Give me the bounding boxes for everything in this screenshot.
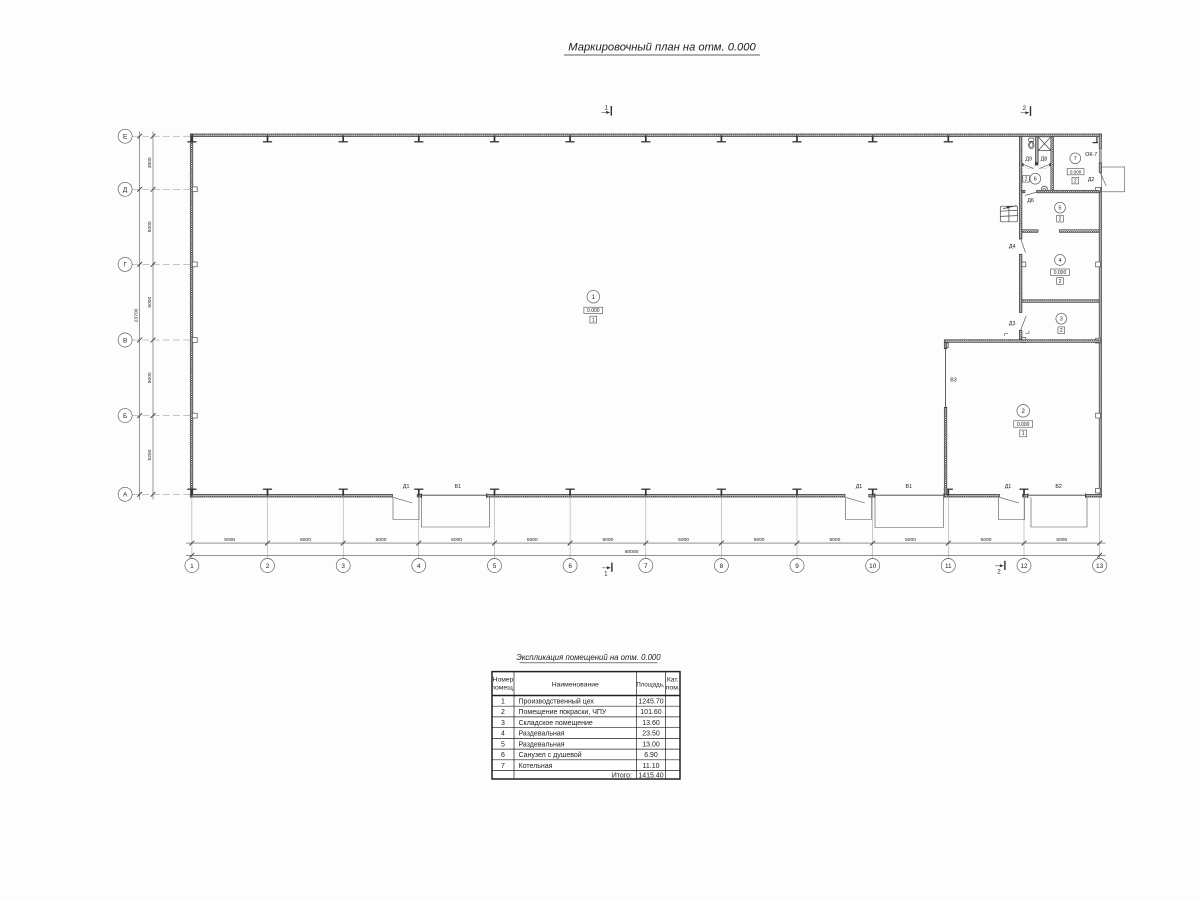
svg-text:Д: Д — [123, 187, 128, 194]
svg-text:Кат.: Кат. — [667, 677, 679, 684]
svg-text:1: 1 — [605, 105, 609, 112]
svg-text:5000: 5000 — [829, 537, 840, 543]
svg-text:8: 8 — [720, 563, 724, 570]
svg-text:5000: 5000 — [451, 537, 462, 543]
svg-text:6: 6 — [568, 563, 572, 570]
svg-text:Раздевальная: Раздевальная — [519, 731, 565, 738]
svg-text:101.60: 101.60 — [640, 709, 662, 716]
svg-text:0.000: 0.000 — [1070, 169, 1082, 174]
svg-text:5000: 5000 — [527, 537, 538, 543]
svg-text:5000: 5000 — [147, 296, 153, 307]
svg-text:Д6: Д6 — [1027, 198, 1034, 204]
svg-text:1: 1 — [604, 571, 608, 578]
svg-text:5000: 5000 — [147, 221, 153, 232]
svg-text:Складское помещение: Складское помещение — [519, 720, 593, 727]
svg-text:10: 10 — [869, 563, 877, 570]
svg-text:Д4: Д4 — [1009, 244, 1016, 250]
svg-text:2: 2 — [266, 563, 270, 570]
svg-text:5000: 5000 — [1056, 537, 1067, 543]
svg-text:1245.70: 1245.70 — [638, 699, 663, 706]
svg-text:Итого:: Итого: — [612, 772, 632, 779]
svg-text:Б: Б — [123, 413, 127, 420]
svg-text:Г: Г — [123, 262, 127, 269]
svg-text:1: 1 — [501, 699, 505, 706]
svg-text:Д1: Д1 — [856, 484, 863, 490]
svg-text:5000: 5000 — [602, 537, 613, 543]
svg-text:помещ.: помещ. — [491, 685, 515, 692]
svg-text:Номер: Номер — [493, 677, 514, 684]
svg-text:0.000: 0.000 — [587, 308, 600, 314]
svg-text:3: 3 — [501, 720, 505, 727]
svg-text:5000: 5000 — [224, 537, 235, 543]
svg-text:2: 2 — [1023, 105, 1027, 112]
svg-text:Котельная: Котельная — [519, 763, 553, 770]
svg-text:5: 5 — [501, 741, 505, 748]
svg-text:Д1: Д1 — [1005, 484, 1012, 490]
svg-text:Д8: Д8 — [1041, 157, 1048, 163]
svg-text:2: 2 — [501, 709, 505, 716]
svg-text:60000: 60000 — [625, 549, 639, 555]
svg-text:5: 5 — [1059, 206, 1062, 212]
svg-text:5000: 5000 — [300, 537, 311, 543]
svg-text:Площадь,: Площадь, — [636, 682, 665, 689]
svg-text:4: 4 — [1059, 258, 1062, 264]
svg-text:11.10: 11.10 — [643, 763, 660, 770]
svg-text:Д3: Д3 — [1009, 321, 1016, 327]
svg-text:3: 3 — [1060, 317, 1063, 323]
svg-text:Наименование: Наименование — [552, 682, 599, 689]
svg-text:7: 7 — [644, 563, 648, 570]
svg-text:Е: Е — [123, 134, 127, 141]
svg-text:5: 5 — [493, 563, 497, 570]
svg-text:0.000: 0.000 — [1017, 422, 1030, 428]
svg-text:ОК-7: ОК-7 — [1085, 152, 1097, 158]
svg-text:2: 2 — [1059, 279, 1062, 285]
svg-text:5000: 5000 — [376, 537, 387, 543]
svg-text:пом.: пом. — [666, 685, 680, 692]
svg-text:1415.40: 1415.40 — [638, 772, 663, 779]
svg-text:1: 1 — [1022, 431, 1025, 437]
svg-text:В1: В1 — [906, 484, 913, 490]
svg-text:7: 7 — [1074, 156, 1077, 162]
svg-text:6.90: 6.90 — [644, 752, 658, 759]
svg-text:А: А — [123, 492, 128, 499]
svg-text:4: 4 — [501, 731, 505, 738]
svg-text:5250: 5250 — [147, 449, 153, 460]
svg-text:9: 9 — [795, 563, 799, 570]
svg-text:Д9: Д9 — [1025, 157, 1032, 163]
svg-text:В: В — [123, 337, 127, 344]
svg-text:23.50: 23.50 — [642, 731, 660, 738]
svg-text:3: 3 — [341, 563, 345, 570]
svg-text:2: 2 — [1074, 178, 1077, 184]
svg-text:Раздевальная: Раздевальная — [519, 741, 565, 748]
svg-text:В1: В1 — [455, 484, 462, 490]
svg-text:2: 2 — [1059, 217, 1062, 223]
svg-text:6: 6 — [1034, 177, 1037, 183]
svg-text:13.00: 13.00 — [642, 741, 660, 748]
svg-text:2: 2 — [1060, 328, 1063, 334]
svg-text:Д1: Д1 — [403, 484, 410, 490]
svg-text:5000: 5000 — [905, 537, 916, 543]
svg-text:13: 13 — [1096, 563, 1104, 570]
svg-text:5000: 5000 — [981, 537, 992, 543]
svg-text:В3: В3 — [950, 378, 957, 384]
svg-text:5000: 5000 — [678, 537, 689, 543]
svg-text:3500: 3500 — [147, 157, 153, 168]
svg-text:Санузел с душевой: Санузел с душевой — [519, 751, 582, 759]
svg-text:Д2: Д2 — [1088, 177, 1095, 183]
svg-text:1: 1 — [592, 317, 595, 323]
svg-text:Помещение покраски, ЧПУ: Помещение покраски, ЧПУ — [519, 709, 607, 716]
svg-text:12: 12 — [1020, 563, 1028, 570]
svg-text:2: 2 — [997, 569, 1001, 576]
svg-text:5000: 5000 — [147, 372, 153, 383]
svg-text:В2: В2 — [1055, 484, 1062, 490]
svg-text:6: 6 — [501, 752, 505, 759]
svg-text:5000: 5000 — [754, 537, 765, 543]
svg-text:23700: 23700 — [134, 308, 140, 322]
svg-text:13.60: 13.60 — [642, 720, 660, 727]
svg-text:7: 7 — [501, 763, 505, 770]
svg-text:11: 11 — [945, 563, 952, 570]
svg-text:0.000: 0.000 — [1054, 270, 1067, 276]
svg-text:Маркировочный план на отм. 0.0: Маркировочный план на отм. 0.000 — [568, 42, 756, 54]
svg-text:2: 2 — [1025, 177, 1028, 183]
svg-text:1: 1 — [190, 563, 194, 570]
svg-text:Экспликация помещений на отм.: Экспликация помещений на отм. 0.000 — [516, 653, 661, 662]
svg-text:Производственный цех: Производственный цех — [519, 698, 595, 706]
svg-text:4: 4 — [417, 563, 421, 570]
